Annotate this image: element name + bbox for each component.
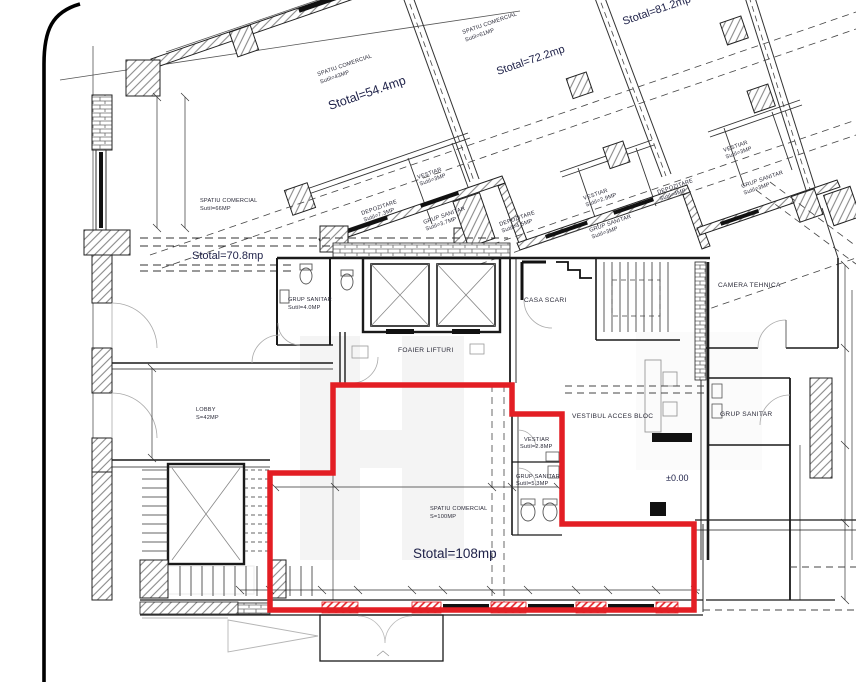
label-vestibul: VESTIBUL ACCES BLOC — [572, 413, 653, 420]
label-vest-c3: VESTIAR Sutil=3MP — [723, 139, 753, 160]
total-label-s108: Stotal=108mp — [413, 546, 497, 561]
room-sanitar-2 — [341, 258, 363, 332]
ramp-arrow — [142, 618, 318, 652]
label-lobby: LOBBY S=42MP — [196, 407, 219, 421]
label-vestiar-28: VESTIAR Sutil=2.8MP — [520, 437, 553, 450]
label-casa-scari: CASA SCARI — [524, 297, 567, 304]
floor-plan-sheet: SPATIU COMERCIAL Sutil=43MP Stotal=54.4m… — [0, 0, 856, 682]
room-label-s72: SPATIU COMERCIAL Sutil=61MP — [462, 11, 522, 43]
total-label-s81: Stotal=81.2mp — [621, 0, 692, 28]
label-camera-tehnica: CAMERA TEHNICA — [718, 282, 781, 289]
floor-plan-drawing: SPATIU COMERCIAL Sutil=43MP Stotal=54.4m… — [0, 0, 856, 682]
total-label-s70: Stotal=70.8mp — [192, 250, 263, 262]
total-label-s72: Stotal=72.2mp — [495, 43, 566, 78]
label-vest-3: VESTIAR Sutil=3MP — [417, 166, 447, 187]
label-gs-40: GRUP SANITAR Sutil=4.0MP — [288, 297, 334, 311]
room-label-s54: SPATIU COMERCIAL Sutil=43MP — [317, 53, 377, 85]
label-gs-53: GRUP SANITAR Sutil=5.3MP — [516, 474, 562, 487]
label-gs-c3: GRUP SANITAR Sutil=3MP — [741, 169, 788, 196]
label-gs-right: GRUP SANITAR — [720, 411, 772, 418]
window-strip — [99, 152, 103, 228]
stairwell — [140, 464, 312, 598]
grid-dashed-lines — [150, 12, 856, 312]
entrance-vestibule — [320, 615, 443, 661]
entrance-step — [650, 502, 666, 516]
label-vest-29: VESTIAR Sutil=2.9MP — [583, 186, 618, 209]
entrance-mat — [652, 433, 692, 442]
label-level: ±0.00 — [666, 473, 688, 483]
door-swings-left — [112, 303, 157, 438]
property-line — [44, 4, 80, 682]
label-foaier: FOAIER LIFTURI — [398, 347, 454, 354]
corner-pier — [126, 60, 160, 96]
elevator-block — [363, 258, 500, 334]
room-label-s70: SPATIU COMERCIAL Sutil=66MP — [200, 198, 259, 212]
